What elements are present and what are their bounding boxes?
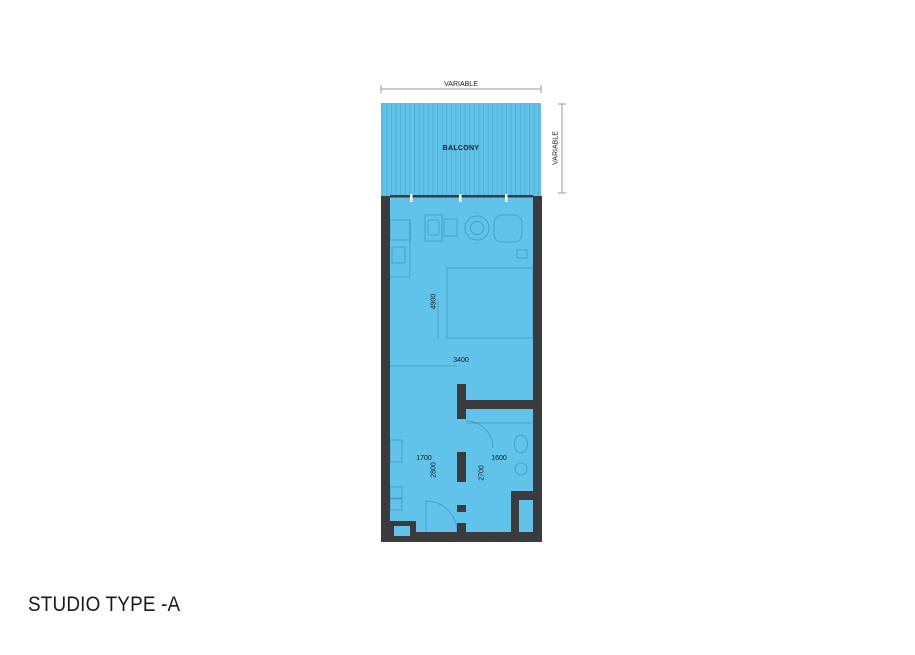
floor-plan-canvas: BALCONY VARIABLE VARIABLE [0,0,915,655]
wall-bathroom-top [461,400,533,409]
dimension-right: VARIABLE [553,104,567,193]
dim-room-depth: 4900 [431,294,438,310]
wall-partition-mid [457,452,466,482]
dim-bath-width: 1600 [491,455,507,462]
dimension-label-right: VARIABLE [553,131,560,165]
dim-entry-width: 1700 [416,455,432,462]
dim-entry-depth: 2800 [431,462,438,478]
dimension-label-top: VARIABLE [444,81,478,88]
balcony-label: BALCONY [443,145,480,152]
dim-bath-depth: 2700 [479,465,486,481]
wall-left [381,196,390,542]
page-title: STUDIO TYPE -A [28,593,180,617]
window-mullion-2 [459,194,462,202]
entry-threshold-recess [394,526,410,536]
dim-room-width: 3400 [453,357,469,364]
wall-partition-upper [457,384,466,419]
dimension-top: VARIABLE [381,81,541,93]
balcony-area: BALCONY [381,103,541,196]
wall-partition-stub [457,505,466,512]
window-mullion-3 [505,194,508,202]
wall-shower-left [511,491,519,532]
wall-partition-lower [457,523,466,542]
wall-right [533,196,542,542]
window-mullion-1 [410,194,413,202]
